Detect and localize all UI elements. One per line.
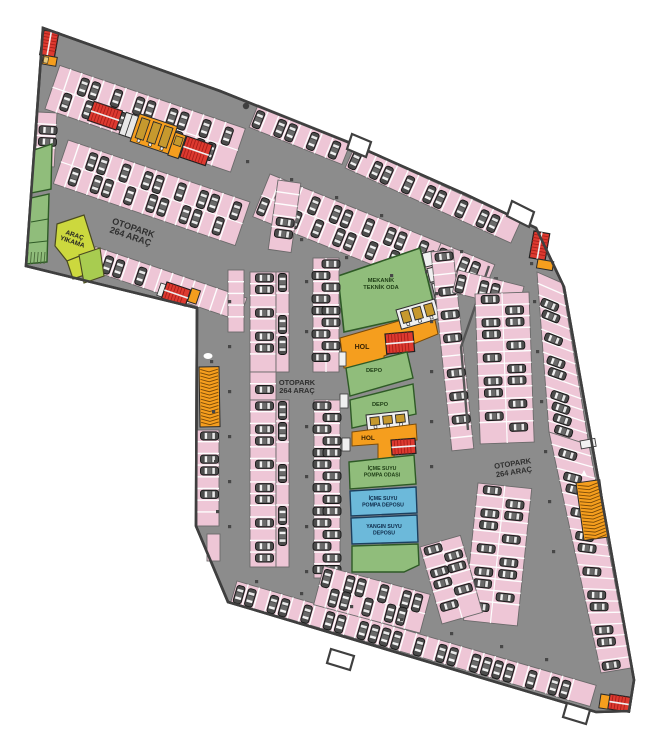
svg-text:264 ARAÇ: 264 ARAÇ [279,386,315,395]
svg-text:HOL: HOL [361,435,375,442]
svg-text:TEKNİK ODA: TEKNİK ODA [363,284,398,291]
svg-text:POMPA ODASI: POMPA ODASI [364,473,401,479]
svg-text:DEPO: DEPO [372,402,389,408]
svg-text:HOL: HOL [355,344,371,351]
svg-text:YANGIN SUYU: YANGIN SUYU [366,524,402,530]
svg-text:İÇME SUYU: İÇME SUYU [368,465,397,472]
svg-text:İÇME SUYU: İÇME SUYU [369,495,398,502]
svg-text:DEPOSU: DEPOSU [373,531,395,537]
svg-text:MEKANİK: MEKANİK [368,277,395,284]
svg-text:DEPO: DEPO [366,368,383,374]
svg-text:POMPA DEPOSU: POMPA DEPOSU [362,503,404,509]
